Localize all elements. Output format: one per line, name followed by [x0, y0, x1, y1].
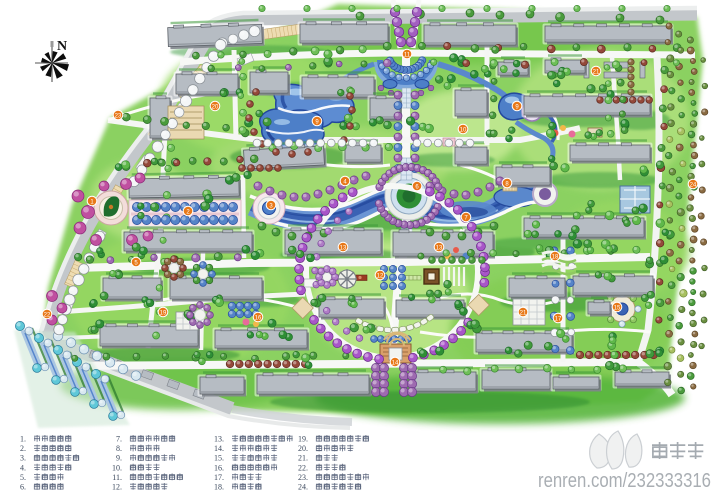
- svg-text:22: 22: [44, 312, 51, 318]
- svg-text:11.: 11.: [112, 473, 122, 482]
- svg-text:14.: 14.: [214, 444, 224, 453]
- svg-text:12: 12: [377, 273, 384, 279]
- svg-text:23: 23: [115, 113, 122, 119]
- svg-text:7.: 7.: [116, 435, 122, 444]
- svg-text:6.: 6.: [20, 483, 26, 492]
- svg-text:10.: 10.: [112, 463, 122, 472]
- svg-text:20: 20: [212, 104, 219, 110]
- svg-text:14: 14: [392, 360, 399, 366]
- svg-text:16: 16: [255, 315, 262, 321]
- svg-text:10: 10: [460, 127, 467, 133]
- svg-text:23.: 23.: [298, 473, 308, 482]
- svg-text:17: 17: [555, 316, 562, 322]
- svg-text:19.: 19.: [298, 435, 308, 444]
- svg-text:12.: 12.: [112, 483, 122, 492]
- svg-text:renren.com/232333316: renren.com/232333316: [538, 470, 711, 492]
- svg-text:1.: 1.: [20, 435, 26, 444]
- svg-text:19: 19: [160, 310, 167, 316]
- svg-text:22.: 22.: [298, 463, 308, 472]
- svg-text:18: 18: [552, 254, 559, 260]
- svg-text:18.: 18.: [214, 483, 224, 492]
- svg-text:24.: 24.: [298, 483, 308, 492]
- svg-text:21.: 21.: [298, 454, 308, 463]
- svg-text:13.: 13.: [214, 435, 224, 444]
- svg-text:9.: 9.: [116, 454, 122, 463]
- svg-text:24: 24: [690, 182, 697, 188]
- svg-text:21: 21: [593, 69, 600, 75]
- svg-text:16.: 16.: [214, 463, 224, 472]
- svg-text:15.: 15.: [214, 454, 224, 463]
- svg-text:21: 21: [520, 310, 527, 316]
- svg-text:N: N: [57, 39, 67, 54]
- svg-text:5.: 5.: [20, 473, 26, 482]
- svg-text:13: 13: [340, 245, 347, 251]
- svg-text:15: 15: [614, 305, 621, 311]
- svg-text:3.: 3.: [20, 454, 26, 463]
- svg-text:2.: 2.: [20, 444, 26, 453]
- svg-text:8.: 8.: [116, 444, 122, 453]
- svg-text:13: 13: [436, 245, 443, 251]
- svg-text:20.: 20.: [298, 444, 308, 453]
- svg-text:4.: 4.: [20, 463, 26, 472]
- svg-text:17.: 17.: [214, 473, 224, 482]
- svg-text:11: 11: [404, 52, 411, 58]
